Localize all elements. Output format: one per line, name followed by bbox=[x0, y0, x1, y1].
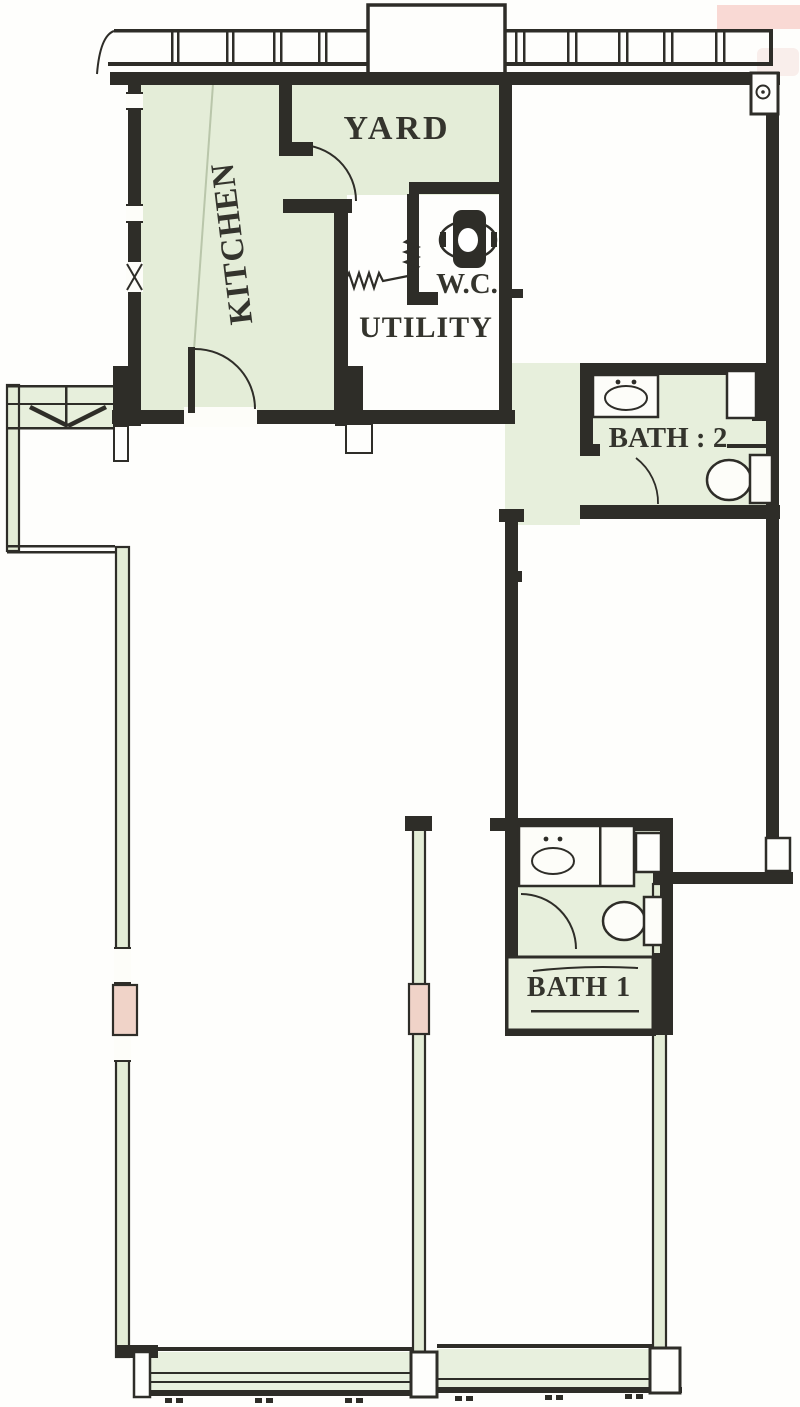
room-label-utility: UTILITY bbox=[341, 313, 511, 343]
top-parapet-railing bbox=[97, 5, 773, 81]
bath1-toilet-tank bbox=[644, 897, 663, 945]
pink-scan-mark bbox=[717, 5, 800, 29]
room-label-bath1: BATH 1 bbox=[509, 974, 649, 1002]
floor-plan-page: KITCHEN YARD W.C. UTILITY BATH : 2 BATH … bbox=[0, 0, 800, 1407]
column-pink-left bbox=[113, 985, 137, 1035]
floor-plan-drawing bbox=[0, 0, 800, 1407]
bath1-shaft bbox=[636, 833, 661, 872]
room-label-bath2: BATH : 2 bbox=[588, 424, 748, 453]
balcony-column bbox=[411, 1352, 437, 1397]
roof-ledge-box bbox=[368, 5, 505, 81]
lower-wall-features bbox=[113, 947, 429, 1062]
bath1-sink-counter bbox=[519, 826, 634, 886]
service-shaft bbox=[727, 371, 756, 418]
bath2-toilet-tank bbox=[750, 455, 772, 503]
floor-trap-icon bbox=[751, 73, 778, 114]
hall-walls bbox=[499, 509, 524, 832]
ac-ledge bbox=[766, 838, 790, 871]
bath2-toilet-icon bbox=[707, 460, 751, 500]
balcony-column bbox=[134, 1352, 150, 1397]
column-pink-mid bbox=[409, 984, 429, 1034]
bath1-toilet-icon bbox=[603, 902, 645, 940]
wc-toilet-icon bbox=[440, 210, 497, 268]
balcony-column bbox=[650, 1348, 680, 1393]
room-label-yard: YARD bbox=[332, 112, 462, 146]
room-label-wc: W.C. bbox=[417, 270, 517, 299]
